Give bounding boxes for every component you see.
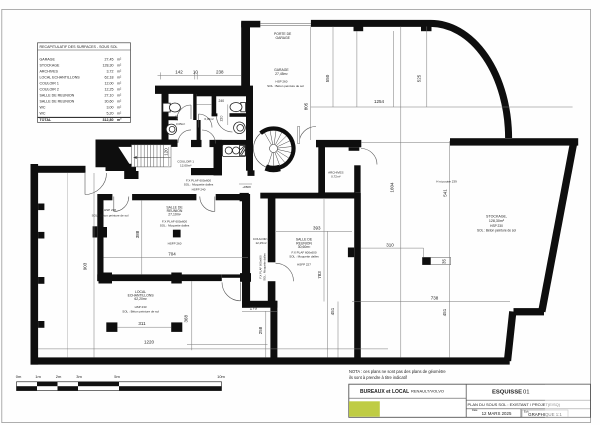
svg-text:62,18: 62,18 — [105, 75, 114, 79]
svg-text:2m: 2m — [56, 374, 62, 379]
svg-text:WC: WC — [40, 105, 46, 109]
svg-text:10: 10 — [193, 70, 199, 75]
svg-text:HSFP 227: HSFP 227 — [297, 262, 311, 266]
svg-text:H st poutre 239: H st poutre 239 — [436, 179, 457, 183]
svg-text:310: 310 — [386, 243, 394, 248]
svg-text:GARAGE: GARAGE — [275, 36, 290, 40]
svg-text:451: 451 — [442, 308, 447, 316]
svg-text:COULOIR 2: COULOIR 2 — [40, 87, 59, 91]
svg-text:27,45m²: 27,45m² — [275, 72, 288, 76]
svg-text:0,72m²: 0,72m² — [331, 175, 340, 179]
svg-text:3,05m²: 3,05m² — [176, 122, 185, 126]
svg-text:142: 142 — [175, 70, 183, 75]
svg-text:3,00: 3,00 — [107, 105, 114, 109]
svg-text:30,60m²: 30,60m² — [298, 245, 311, 249]
svg-text:BUREAUX et LOCAL: BUREAUX et LOCAL — [360, 389, 409, 395]
svg-text:170: 170 — [250, 306, 258, 311]
svg-text:SOL : Moquette dalles: SOL : Moquette dalles — [184, 183, 214, 187]
svg-text:ARCHIVES: ARCHIVES — [40, 69, 59, 73]
svg-text:6,05m²: 6,05m² — [204, 117, 213, 121]
svg-text:COULOIR 1: COULOIR 1 — [40, 81, 59, 85]
svg-text:12,00m²: 12,00m² — [180, 163, 191, 167]
svg-text:393: 393 — [313, 225, 321, 230]
svg-text:903: 903 — [83, 262, 88, 270]
svg-text:HSP 233: HSP 233 — [135, 305, 147, 309]
svg-text:27,45: 27,45 — [105, 57, 114, 61]
svg-text:01: 01 — [523, 390, 530, 396]
svg-text:SOL : Béton peinture de sol: SOL : Béton peinture de sol — [477, 228, 516, 232]
svg-text:27,10m²: 27,10m² — [168, 213, 181, 217]
svg-text:783: 783 — [317, 271, 322, 279]
svg-text:312,80: 312,80 — [103, 118, 114, 122]
svg-text:TOTAL: TOTAL — [40, 118, 52, 122]
svg-text:SALLE DE REUNION: SALLE DE REUNION — [40, 93, 75, 97]
svg-text:Date: Date — [472, 408, 478, 412]
svg-text:SOL : Béton peinture de sol: SOL : Béton peinture de sol — [92, 214, 129, 218]
svg-text:ils sont à prendre à titre ind: ils sont à prendre à titre indicatif — [349, 375, 408, 380]
svg-text:ESQUISSE: ESQUISSE — [492, 390, 522, 396]
svg-text:SOL : Moquette dalles: SOL : Moquette dalles — [262, 253, 266, 281]
svg-text:704: 704 — [168, 252, 176, 257]
svg-text:+FB08: +FB08 — [242, 185, 251, 189]
svg-text:5m: 5m — [114, 374, 120, 379]
svg-text:STOCKAGE: STOCKAGE — [40, 63, 61, 67]
svg-text:1m: 1m — [35, 374, 41, 379]
svg-text:3,72: 3,72 — [107, 69, 114, 73]
svg-text:NOTA : ces plans ne sont pas d: NOTA : ces plans ne sont pas des plans d… — [349, 369, 446, 374]
svg-text:128,30m²: 128,30m² — [489, 219, 505, 223]
svg-text:738: 738 — [431, 296, 439, 301]
svg-text:SOL : Béton peinture de sol: SOL : Béton peinture de sol — [267, 84, 304, 88]
svg-text:805: 805 — [304, 102, 309, 110]
svg-text:RENAULT/VOLVO: RENAULT/VOLVO — [411, 389, 444, 394]
svg-text:12,25: 12,25 — [105, 87, 114, 91]
svg-text:SOL : Béton peinture de sol: SOL : Béton peinture de sol — [122, 310, 159, 314]
svg-text:0m: 0m — [16, 374, 22, 379]
svg-text:SALLE DE REUNION: SALLE DE REUNION — [40, 99, 75, 103]
svg-text:1220: 1220 — [144, 340, 155, 345]
svg-text:GARAGE: GARAGE — [40, 57, 56, 61]
svg-text:SOL : Moquette dalles: SOL : Moquette dalles — [289, 255, 319, 259]
svg-text:525: 525 — [417, 74, 422, 82]
svg-text:258: 258 — [258, 326, 263, 334]
svg-text:120: 120 — [163, 148, 168, 156]
svg-text:5,20: 5,20 — [107, 111, 114, 115]
svg-text:HSP 260: HSP 260 — [275, 79, 287, 83]
svg-text:451: 451 — [330, 307, 335, 315]
svg-text:12,25m²: 12,25m² — [255, 241, 266, 245]
svg-text:10m: 10m — [217, 374, 225, 379]
svg-text:210: 210 — [175, 115, 179, 121]
svg-text:550: 550 — [325, 74, 330, 82]
svg-text:27,10: 27,10 — [105, 93, 114, 97]
svg-text:238: 238 — [216, 70, 224, 75]
svg-text:RECAPITULATIF DES SURFACES - S: RECAPITULATIF DES SURFACES - SOUS SOL — [40, 45, 118, 49]
svg-text:220: 220 — [220, 116, 224, 122]
svg-text:62,20m²: 62,20m² — [134, 297, 147, 301]
svg-text:SOL : Moquette dalles: SOL : Moquette dalles — [160, 224, 190, 228]
svg-text:HSP 238: HSP 238 — [104, 208, 116, 212]
svg-text:368: 368 — [183, 315, 188, 323]
svg-text:12,00: 12,00 — [105, 81, 114, 85]
svg-text:30,60: 30,60 — [105, 99, 114, 103]
svg-text:388: 388 — [135, 230, 140, 238]
svg-text:12 MARS 2025: 12 MARS 2025 — [482, 411, 512, 416]
svg-text:35: 35 — [442, 259, 447, 265]
svg-text:128,30: 128,30 — [103, 63, 114, 67]
svg-text:LOCAL ECHANTILLONS: LOCAL ECHANTILLONS — [40, 75, 81, 79]
svg-text:HSFP 240: HSFP 240 — [192, 187, 206, 191]
svg-text:311: 311 — [138, 321, 146, 326]
svg-text:HSFP 260: HSFP 260 — [168, 242, 182, 246]
svg-text:WC: WC — [40, 111, 46, 115]
svg-text:240: 240 — [218, 99, 224, 103]
svg-text:541: 541 — [443, 189, 448, 197]
svg-text:1604: 1604 — [390, 182, 395, 193]
svg-text:1254: 1254 — [374, 99, 385, 104]
svg-text:3m: 3m — [76, 374, 82, 379]
